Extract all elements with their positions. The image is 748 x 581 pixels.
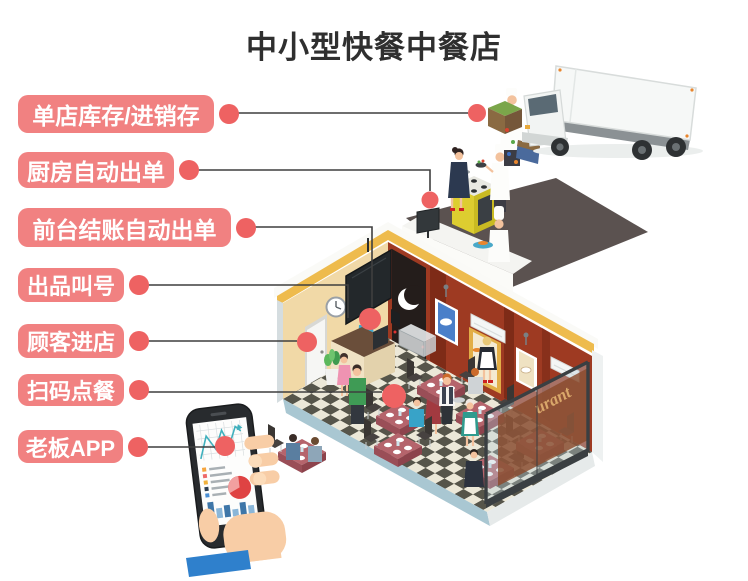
- label-customer-enter-pill: 顾客进店: [18, 324, 124, 358]
- page-title: 中小型快餐中餐店: [0, 22, 748, 67]
- callout-line-kitchen-ticket: [192, 170, 430, 191]
- label-front-desk-pill: 前台结账自动出单: [18, 208, 231, 247]
- right-wall-cut-edge: [592, 350, 603, 462]
- left-wall-cut-edge: [277, 300, 283, 403]
- label-front-desk: 前台结账自动出单: [18, 208, 256, 247]
- label-kitchen-ticket-dot: [179, 160, 199, 180]
- boss-app-phone: [185, 400, 291, 567]
- label-scan-order-dot: [129, 380, 149, 400]
- label-boss-app-dot: [128, 437, 148, 457]
- infographic-canvas: urant: [0, 0, 748, 581]
- label-front-desk-dot: [236, 218, 256, 238]
- label-boss-app: 老板APP: [18, 430, 148, 463]
- callout-dot-scan-order: [382, 384, 406, 408]
- label-inventory-pill: 单店库存/进销存: [18, 95, 214, 133]
- label-inventory-dot: [219, 104, 239, 124]
- wall-clock: [327, 298, 346, 317]
- label-call-number-pill: 出品叫号: [18, 268, 124, 302]
- callout-dot-boss-app: [215, 436, 235, 456]
- label-inventory: 单店库存/进销存: [18, 95, 239, 133]
- label-scan-order: 扫码点餐: [18, 374, 149, 406]
- callout-dot-kitchen-ticket: [422, 192, 439, 209]
- label-call-number: 出品叫号: [18, 268, 149, 302]
- callout-dot-front-desk: [359, 308, 381, 330]
- label-kitchen-ticket-pill: 厨房自动出单: [18, 152, 174, 188]
- sleeve-cuff: [186, 550, 251, 577]
- callout-dot-customer-enter: [297, 332, 317, 352]
- label-scan-order-pill: 扫码点餐: [18, 374, 124, 406]
- label-call-number-dot: [129, 275, 149, 295]
- delivery-truck: [522, 66, 703, 160]
- produce-crate: [488, 101, 522, 134]
- callout-dot-inventory: [468, 104, 486, 122]
- label-customer-enter-dot: [129, 331, 149, 351]
- label-boss-app-pill: 老板APP: [18, 430, 123, 463]
- label-customer-enter: 顾客进店: [18, 324, 149, 358]
- label-kitchen-ticket: 厨房自动出单: [18, 152, 199, 188]
